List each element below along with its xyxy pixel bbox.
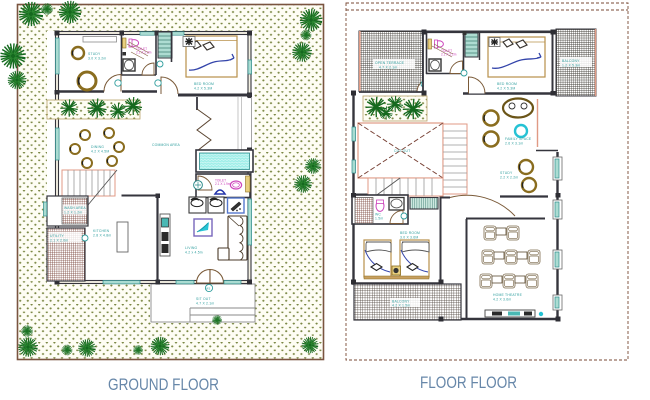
svg-text:BED ROOM: BED ROOM bbox=[194, 82, 214, 86]
svg-text:LIVING: LIVING bbox=[185, 246, 197, 250]
svg-text:2.1 X 2.0m: 2.1 X 2.0m bbox=[50, 238, 68, 242]
svg-text:4.7 X 2.1m: 4.7 X 2.1m bbox=[379, 66, 397, 70]
svg-text:OPEN TERRACE: OPEN TERRACE bbox=[375, 61, 405, 65]
svg-text:2.2 X 2.2m: 2.2 X 2.2m bbox=[500, 176, 518, 180]
svg-text:4.2 x 4.5m: 4.2 x 4.5m bbox=[185, 251, 203, 255]
svg-text:BED ROOM: BED ROOM bbox=[400, 231, 420, 235]
svg-text:COMMON AREA: COMMON AREA bbox=[152, 143, 181, 147]
svg-text:BED ROOM: BED ROOM bbox=[497, 82, 517, 86]
svg-text:DINING: DINING bbox=[91, 145, 104, 149]
svg-text:2.8 X 4.8m: 2.8 X 4.8m bbox=[93, 234, 111, 238]
svg-text:STUDY: STUDY bbox=[500, 171, 513, 175]
svg-text:4.7 X 2.1m: 4.7 X 2.1m bbox=[196, 302, 214, 306]
svg-text:3.0 X 3.2m: 3.0 X 3.2m bbox=[88, 57, 106, 61]
svg-text:SIT OUT: SIT OUT bbox=[196, 297, 211, 301]
svg-text:1.5m: 1.5m bbox=[375, 217, 383, 221]
svg-text:WASH AREA: WASH AREA bbox=[64, 206, 86, 210]
svg-text:CUT OUT: CUT OUT bbox=[394, 149, 410, 153]
svg-text:FAMILY SPACE: FAMILY SPACE bbox=[505, 137, 532, 141]
svg-text:4.2 X 1.5m: 4.2 X 1.5m bbox=[392, 304, 410, 308]
svg-text:MS: MS bbox=[206, 287, 211, 291]
svg-text:2.1 X 2.2m: 2.1 X 2.2m bbox=[136, 51, 152, 55]
svg-text:2.6 X 3.1m: 2.6 X 3.1m bbox=[505, 142, 523, 146]
svg-text:HOME THEATRE: HOME THEATRE bbox=[493, 293, 523, 297]
svg-text:2.1 X 2.2m: 2.1 X 2.2m bbox=[441, 53, 457, 57]
svg-text:4.2 X 3.6m: 4.2 X 3.6m bbox=[493, 298, 511, 302]
svg-text:FLOOR FLOOR: FLOOR FLOOR bbox=[420, 373, 517, 392]
svg-text:2.1 X 1.9m: 2.1 X 1.9m bbox=[215, 182, 231, 186]
svg-text:1.2 X 5.3m: 1.2 X 5.3m bbox=[562, 64, 580, 68]
svg-text:1.2 X 1.2m: 1.2 X 1.2m bbox=[64, 210, 82, 214]
svg-text:4.2 X 5.3M: 4.2 X 5.3M bbox=[194, 87, 212, 91]
svg-text:KITCHEN: KITCHEN bbox=[93, 229, 110, 233]
svg-text:GROUND FLOOR: GROUND FLOOR bbox=[108, 375, 219, 394]
svg-text:4.2 X 4.5M: 4.2 X 4.5M bbox=[91, 150, 109, 154]
svg-text:UTILITY: UTILITY bbox=[50, 234, 65, 238]
svg-text:4.2 X 5.3M: 4.2 X 5.3M bbox=[497, 87, 515, 91]
svg-text:STUDY: STUDY bbox=[88, 52, 101, 56]
svg-text:BALCONY: BALCONY bbox=[562, 59, 580, 63]
svg-text:3.0 X 3.6M: 3.0 X 3.6M bbox=[400, 236, 418, 240]
